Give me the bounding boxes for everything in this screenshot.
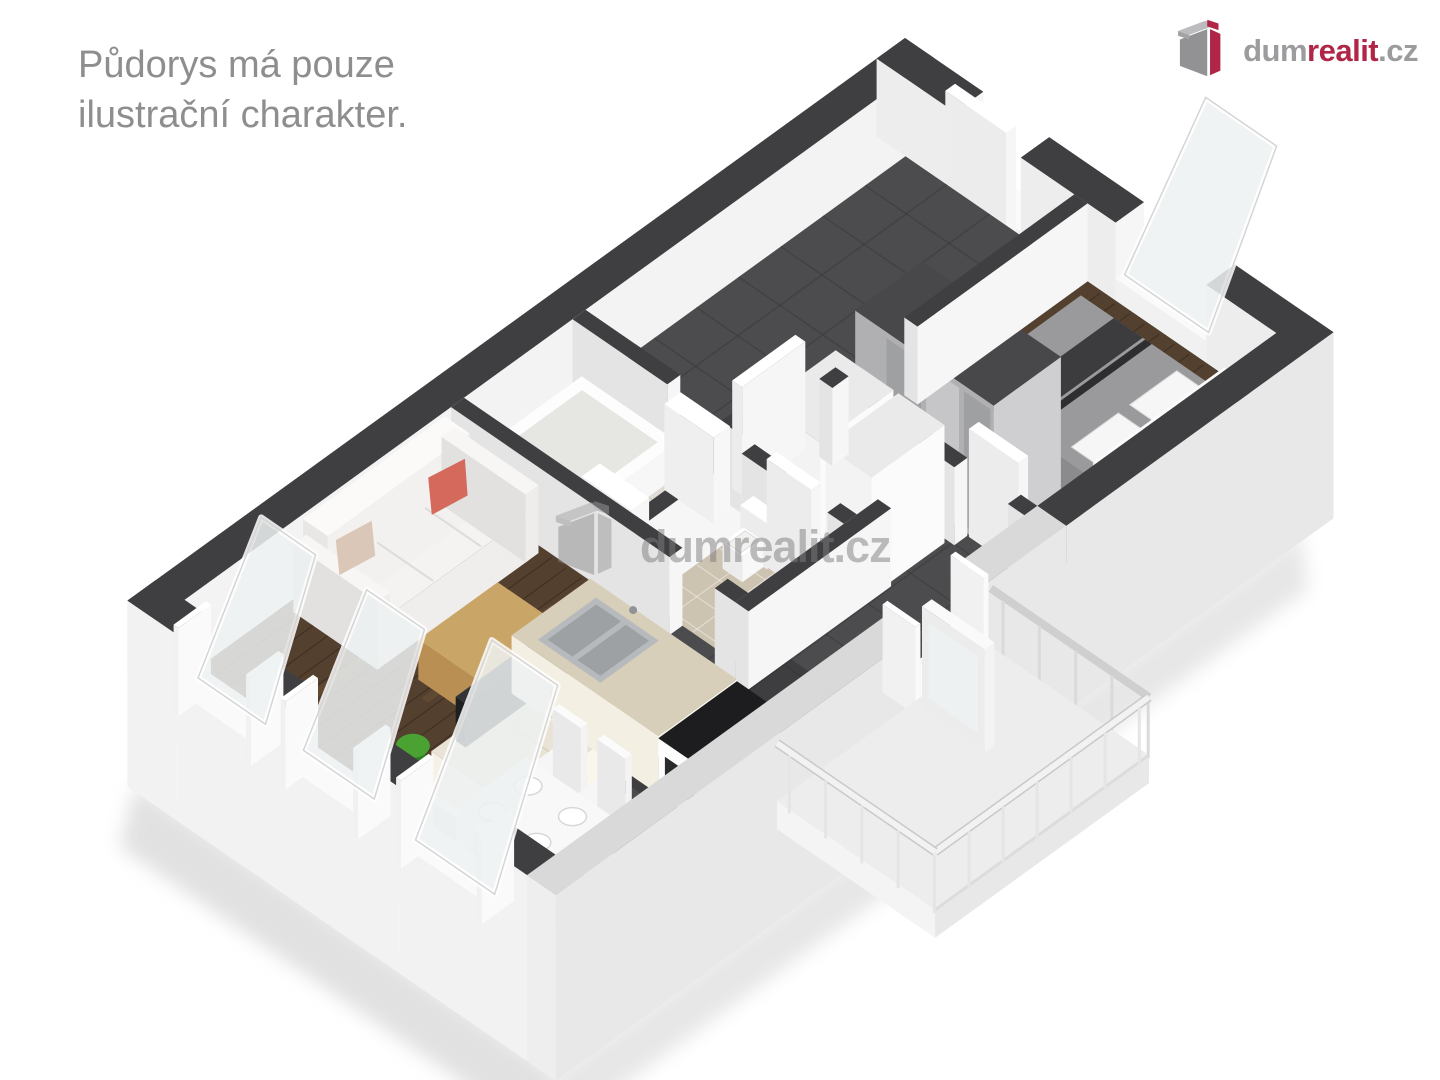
disclaimer-line2: ilustrační charakter. <box>78 90 407 140</box>
brand-logo-text: dumrealit.cz <box>1243 33 1418 69</box>
logo-cz: .cz <box>1378 33 1418 68</box>
disclaimer-line1: Půdorys má pouze <box>78 40 407 90</box>
logo-realit: realit <box>1307 33 1378 68</box>
brand-logo: dumrealit.cz <box>1175 16 1418 85</box>
dumrealit-logo-icon <box>1175 16 1230 85</box>
floor-plan-page: Půdorys má pouze ilustrační charakter. d… <box>0 0 1440 1080</box>
logo-dum: dum <box>1243 33 1307 68</box>
floor-plan-3d-render <box>0 0 1440 1080</box>
disclaimer-text: Půdorys má pouze ilustrační charakter. <box>78 40 407 140</box>
